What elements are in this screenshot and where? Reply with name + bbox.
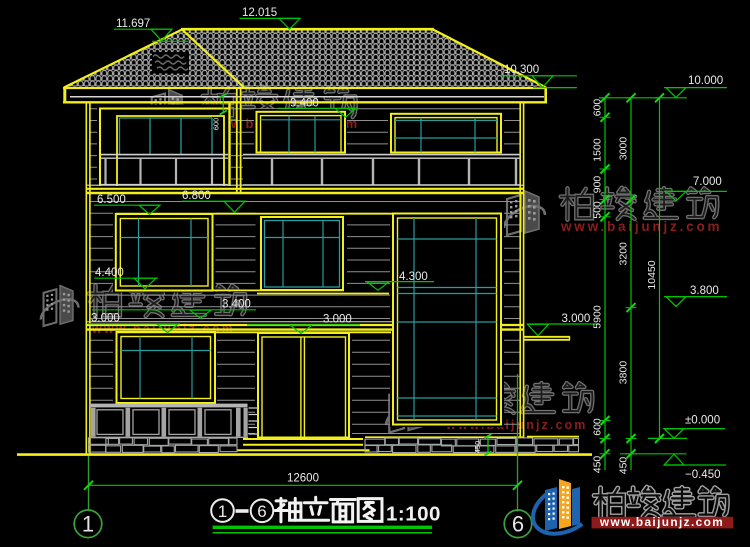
svg-text:10.000: 10.000 (688, 75, 723, 87)
svg-text:6.800: 6.800 (182, 190, 211, 202)
svg-text:1:100: 1:100 (386, 502, 441, 525)
svg-text:3.800: 3.800 (690, 285, 719, 297)
svg-text:±0.000: ±0.000 (685, 415, 720, 427)
svg-text:www.baijunjz.com: www.baijunjz.com (560, 219, 722, 234)
svg-text:4.400: 4.400 (95, 267, 124, 279)
svg-text:1500: 1500 (592, 138, 604, 162)
svg-text:6: 6 (512, 512, 524, 537)
svg-text:1: 1 (218, 502, 227, 521)
svg-text:12.015: 12.015 (242, 7, 277, 19)
svg-text:10450: 10450 (646, 260, 658, 289)
svg-text:10.300: 10.300 (504, 64, 539, 76)
svg-text:12600: 12600 (287, 472, 319, 484)
svg-text:450: 450 (592, 456, 604, 474)
svg-text:3200: 3200 (618, 242, 630, 266)
svg-text:www.baijunjz.com: www.baijunjz.com (599, 515, 724, 529)
svg-text:6: 6 (257, 502, 266, 521)
svg-text:3.000: 3.000 (91, 312, 120, 324)
svg-text:3.000: 3.000 (562, 313, 591, 325)
svg-text:9.400: 9.400 (290, 97, 319, 109)
svg-text:3800: 3800 (618, 361, 630, 385)
svg-text:500: 500 (592, 201, 604, 219)
svg-text:3.000: 3.000 (323, 313, 352, 325)
svg-text:450: 450 (473, 441, 482, 454)
svg-text:600: 600 (212, 118, 221, 131)
svg-text:1: 1 (82, 512, 94, 537)
svg-text:5900: 5900 (592, 305, 604, 329)
svg-text:600: 600 (592, 99, 604, 117)
svg-text:6.500: 6.500 (97, 194, 126, 206)
svg-text:3.400: 3.400 (222, 298, 251, 310)
svg-text:900: 900 (592, 176, 604, 194)
svg-text:11.697: 11.697 (116, 18, 150, 30)
svg-text:450: 450 (618, 457, 630, 475)
svg-text:3000: 3000 (618, 137, 630, 161)
svg-text:−0.450: −0.450 (685, 469, 721, 481)
svg-text:7.000: 7.000 (693, 176, 722, 188)
svg-text:600: 600 (592, 418, 604, 436)
